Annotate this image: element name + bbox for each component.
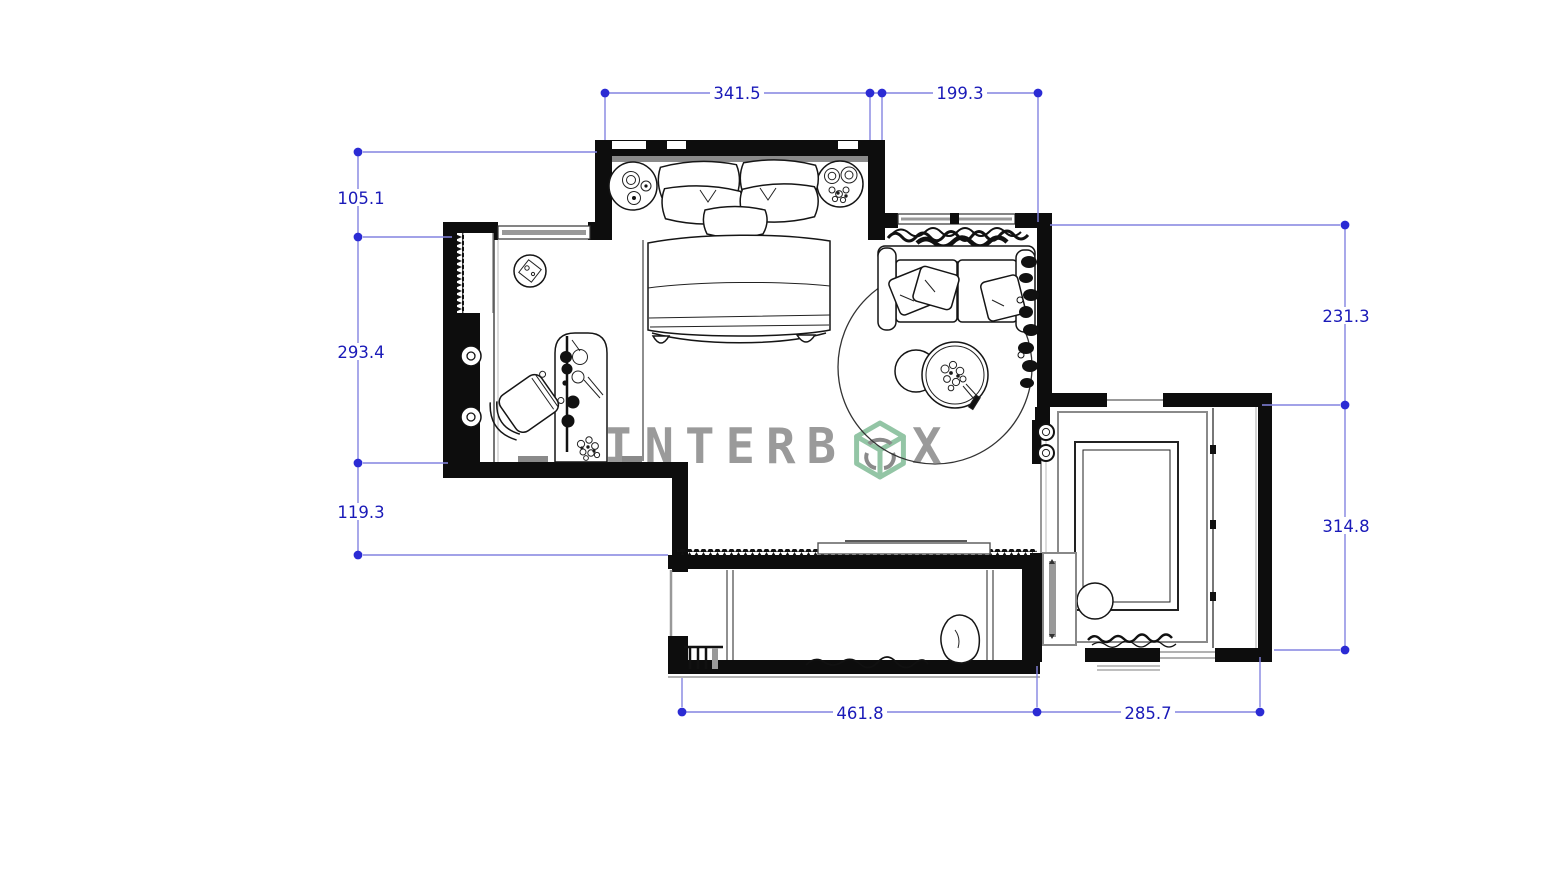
watermark-text-right: X xyxy=(912,418,953,475)
dim-label-left-1: 105.1 xyxy=(337,189,384,208)
dim-label-bottom-1: 461.8 xyxy=(836,704,883,723)
coffee-tables xyxy=(895,342,988,410)
wall-balcony-right xyxy=(1022,556,1040,674)
wall-balcony-bottom xyxy=(668,660,1040,674)
pillow-small xyxy=(703,207,767,238)
bed-body xyxy=(648,235,830,336)
wall-balcony-top xyxy=(668,555,1040,569)
wall-light-2 xyxy=(461,407,481,427)
bed-foot-left xyxy=(653,336,669,343)
dim-label-left-3: 119.3 xyxy=(337,503,384,522)
wall-left-lower xyxy=(443,313,480,478)
bed-foot-right xyxy=(797,335,815,342)
wall-left-upper xyxy=(443,225,457,317)
wall-light-1 xyxy=(461,346,481,366)
sliding-window-panel xyxy=(818,543,990,554)
wall-bath-top-left xyxy=(1037,393,1107,407)
towel xyxy=(1088,635,1176,648)
wall-main-right xyxy=(1037,222,1052,407)
recessed-ceiling-light xyxy=(514,255,546,287)
dim-label-left-2: 293.4 xyxy=(337,343,384,362)
sliding-door-track xyxy=(1210,407,1256,648)
dim-label-right-1: 231.3 xyxy=(1322,307,1369,326)
window-left-room xyxy=(498,226,590,239)
headboard-line xyxy=(612,156,868,162)
dim-label-top-2: 199.3 xyxy=(936,84,983,103)
niche-hatch xyxy=(457,233,464,313)
nightstand-plant xyxy=(817,161,863,207)
window-sofa xyxy=(898,213,1015,224)
dim-label-top-1: 341.5 xyxy=(713,84,760,103)
stool-circle xyxy=(1077,583,1113,619)
storage-cabinet xyxy=(1043,553,1076,645)
wall-bath-bottom-right xyxy=(1215,648,1272,662)
interbox-cube-logo-icon xyxy=(857,423,904,477)
nightstand-lamp xyxy=(609,162,657,210)
double-bed xyxy=(648,159,830,343)
wall-left-room-bottom xyxy=(443,462,688,478)
shower-enclosure xyxy=(1058,412,1207,642)
dim-label-right-2: 314.8 xyxy=(1322,517,1369,536)
wall-bath-bottom-left xyxy=(1085,648,1160,662)
curtain xyxy=(888,228,1028,247)
water-taps xyxy=(1032,420,1054,464)
sofa xyxy=(878,228,1035,332)
wall-bath-top-right xyxy=(1163,393,1272,407)
dim-label-bottom-2: 285.7 xyxy=(1124,704,1171,723)
floor-cushion xyxy=(941,615,979,663)
floor-plan-page: INTERB X xyxy=(0,0,1560,895)
wall-bath-right xyxy=(1258,393,1272,662)
desk xyxy=(555,333,607,462)
floor-plan-canvas: INTERB X xyxy=(0,0,1560,895)
